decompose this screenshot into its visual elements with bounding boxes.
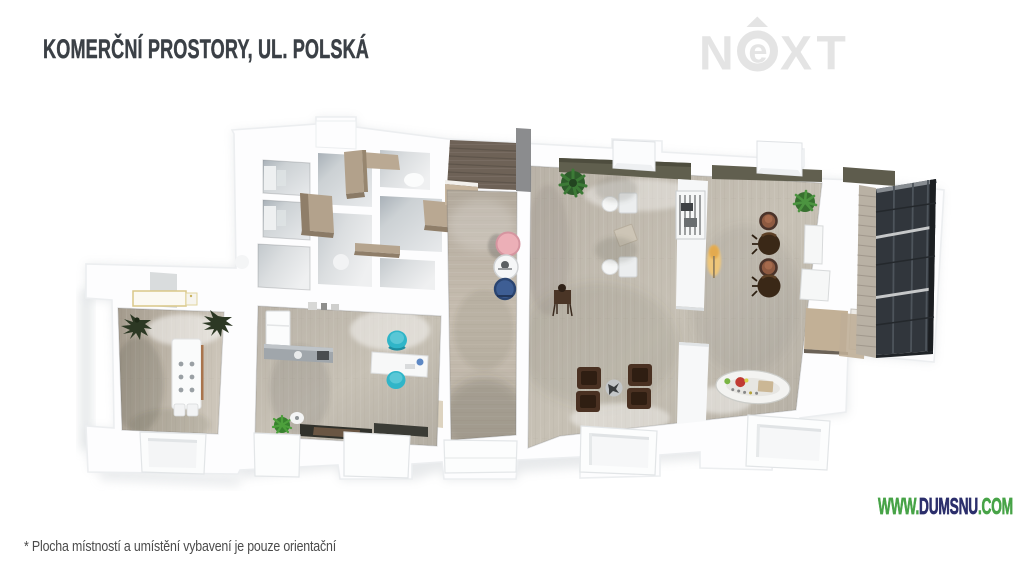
- svg-text:e: e: [749, 33, 768, 71]
- svg-text:N: N: [699, 28, 734, 81]
- svg-text:X: X: [780, 28, 812, 81]
- svg-text:T: T: [817, 28, 846, 81]
